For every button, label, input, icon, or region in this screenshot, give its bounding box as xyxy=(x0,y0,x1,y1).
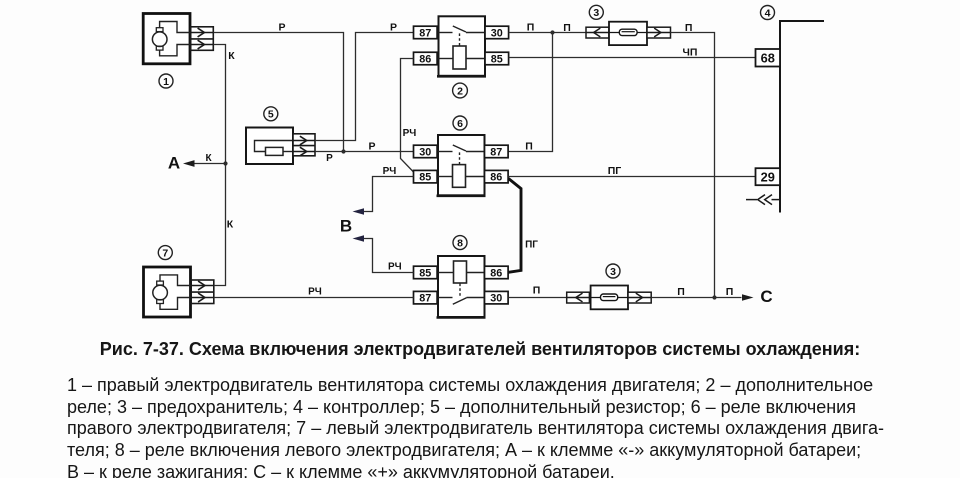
svg-text:ПГ: ПГ xyxy=(525,239,538,250)
svg-text:А: А xyxy=(168,154,180,173)
svg-text:В: В xyxy=(340,216,352,235)
svg-text:86: 86 xyxy=(490,172,502,184)
svg-text:4: 4 xyxy=(765,7,771,19)
svg-text:68: 68 xyxy=(761,51,775,66)
svg-text:30: 30 xyxy=(419,146,431,158)
svg-text:86: 86 xyxy=(490,267,502,279)
svg-text:К: К xyxy=(227,219,234,231)
svg-text:ПГ: ПГ xyxy=(608,165,622,177)
svg-text:3: 3 xyxy=(610,266,616,278)
svg-text:П: П xyxy=(726,286,734,298)
svg-text:Р: Р xyxy=(278,22,285,34)
svg-text:85: 85 xyxy=(419,267,431,279)
svg-text:30: 30 xyxy=(491,27,503,39)
svg-text:П: П xyxy=(525,140,533,152)
svg-text:К: К xyxy=(228,50,235,62)
svg-text:2: 2 xyxy=(457,85,463,97)
svg-text:85: 85 xyxy=(419,172,431,184)
svg-text:П: П xyxy=(527,21,535,33)
svg-text:П: П xyxy=(533,285,541,297)
svg-text:Р: Р xyxy=(326,153,333,164)
svg-text:87: 87 xyxy=(419,293,431,305)
svg-text:87: 87 xyxy=(419,27,431,39)
svg-text:Р: Р xyxy=(368,140,375,152)
svg-text:6: 6 xyxy=(457,118,463,130)
svg-text:РЧ: РЧ xyxy=(308,287,322,298)
svg-text:5: 5 xyxy=(268,109,274,121)
svg-text:3: 3 xyxy=(593,7,599,19)
svg-text:РЧ: РЧ xyxy=(383,166,397,177)
svg-text:РЧ: РЧ xyxy=(388,262,402,273)
svg-text:П: П xyxy=(677,286,685,298)
svg-text:7: 7 xyxy=(162,247,168,259)
svg-text:П: П xyxy=(563,22,571,34)
svg-text:РЧ: РЧ xyxy=(403,128,417,139)
svg-text:С: С xyxy=(760,287,772,306)
svg-text:1: 1 xyxy=(163,76,169,88)
svg-text:30: 30 xyxy=(490,293,502,305)
svg-text:Р: Р xyxy=(390,22,397,34)
svg-text:29: 29 xyxy=(761,170,775,185)
svg-text:86: 86 xyxy=(419,53,431,65)
svg-text:ЧП: ЧП xyxy=(683,46,698,58)
svg-text:85: 85 xyxy=(491,53,503,65)
svg-text:8: 8 xyxy=(457,237,463,249)
svg-text:К: К xyxy=(205,153,212,164)
svg-text:87: 87 xyxy=(490,146,502,158)
